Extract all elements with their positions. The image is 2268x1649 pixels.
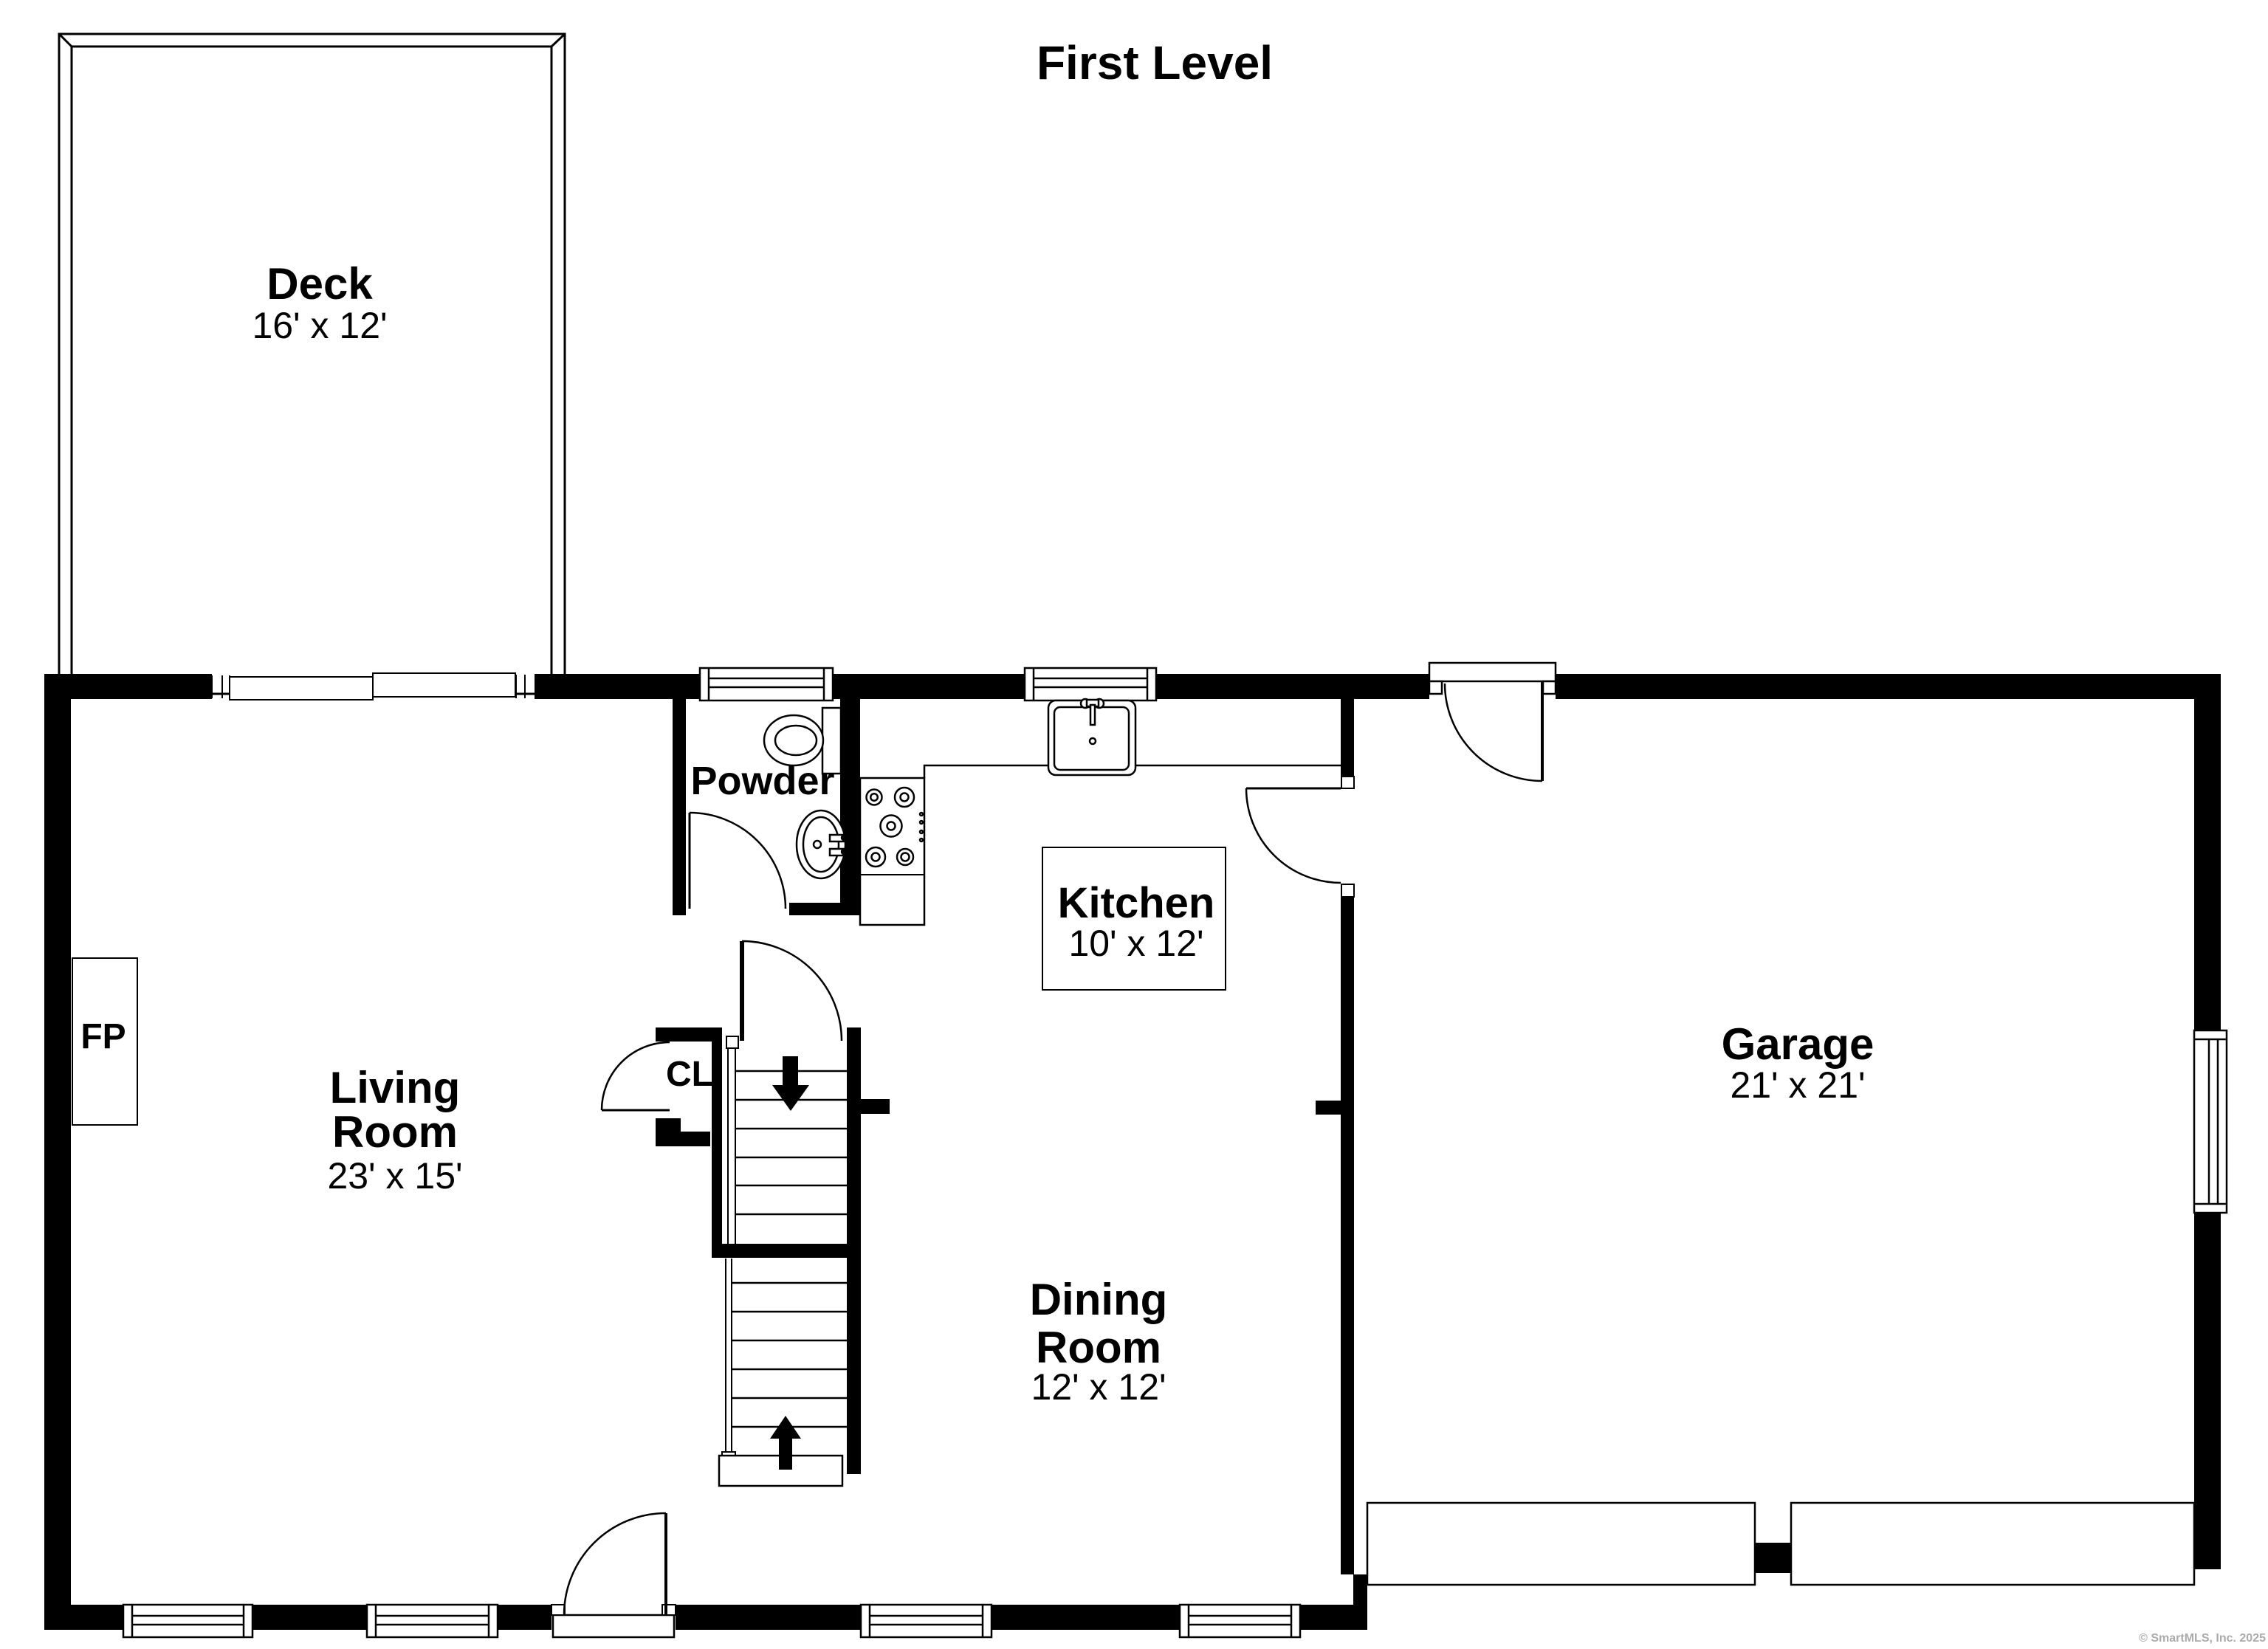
svg-text:Living: Living [330,1063,461,1112]
svg-text:Deck: Deck [267,259,373,309]
svg-text:10' x 12': 10' x 12' [1068,923,1203,964]
svg-text:12' x 12': 12' x 12' [1031,1366,1166,1408]
svg-text:23' x 15': 23' x 15' [327,1155,462,1197]
svg-text:Room: Room [1036,1323,1161,1372]
svg-text:Dining: Dining [1030,1275,1168,1324]
svg-text:© SmartMLS, Inc. 2025: © SmartMLS, Inc. 2025 [2139,1632,2266,1645]
svg-text:CL: CL [666,1055,713,1094]
svg-text:First Level: First Level [1037,36,1273,89]
svg-text:Powder: Powder [690,759,834,803]
svg-text:21' x 21': 21' x 21' [1730,1064,1865,1106]
svg-text:Kitchen: Kitchen [1058,879,1215,927]
svg-text:FP: FP [80,1017,126,1056]
svg-text:Garage: Garage [1722,1019,1874,1069]
svg-text:Room: Room [332,1107,458,1157]
svg-text:16' x 12': 16' x 12' [252,305,387,346]
